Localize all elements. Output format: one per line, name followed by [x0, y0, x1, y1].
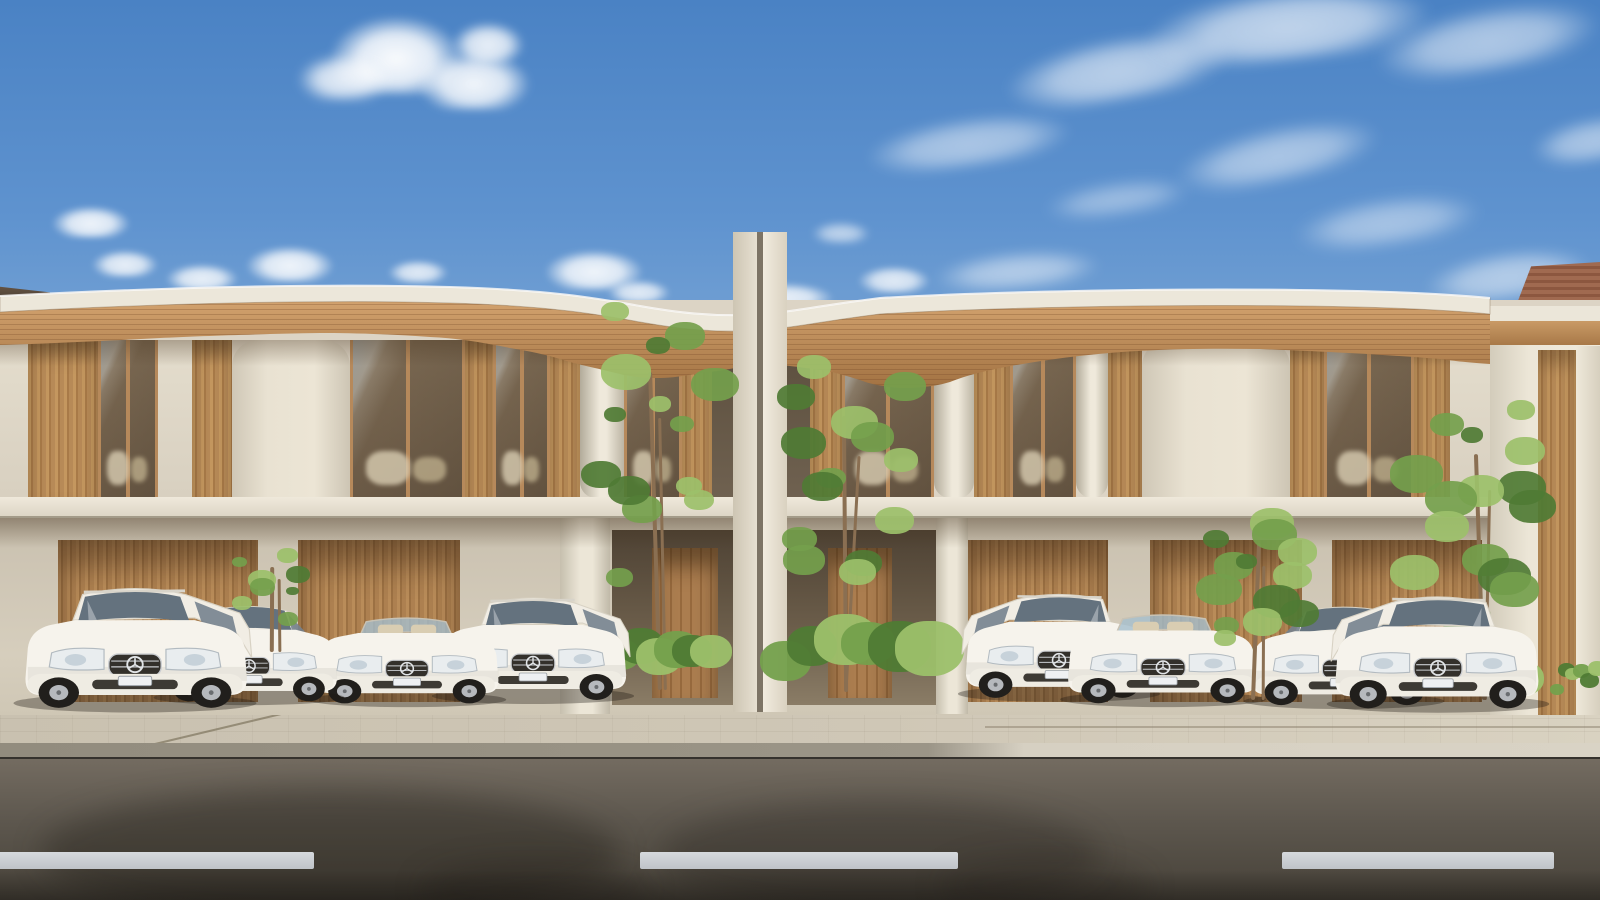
tree-foliage	[232, 557, 247, 567]
tree-foliage	[277, 548, 298, 563]
architectural-render	[0, 0, 1600, 900]
tree-foliage	[1196, 574, 1242, 606]
tree-foliage	[250, 578, 276, 596]
tree-foliage	[1280, 600, 1319, 627]
tree-foliage	[286, 566, 310, 583]
tree-foliage	[232, 596, 252, 610]
tree-foliage	[1203, 530, 1229, 548]
tree	[230, 548, 314, 652]
tree-foliage	[278, 612, 298, 626]
tree-foliage	[286, 587, 298, 596]
tree-layer-front	[0, 0, 1600, 900]
tree-foliage	[1214, 630, 1236, 645]
tree-foliage	[1243, 608, 1283, 636]
tree-foliage	[1236, 554, 1257, 569]
tree	[1186, 508, 1326, 700]
